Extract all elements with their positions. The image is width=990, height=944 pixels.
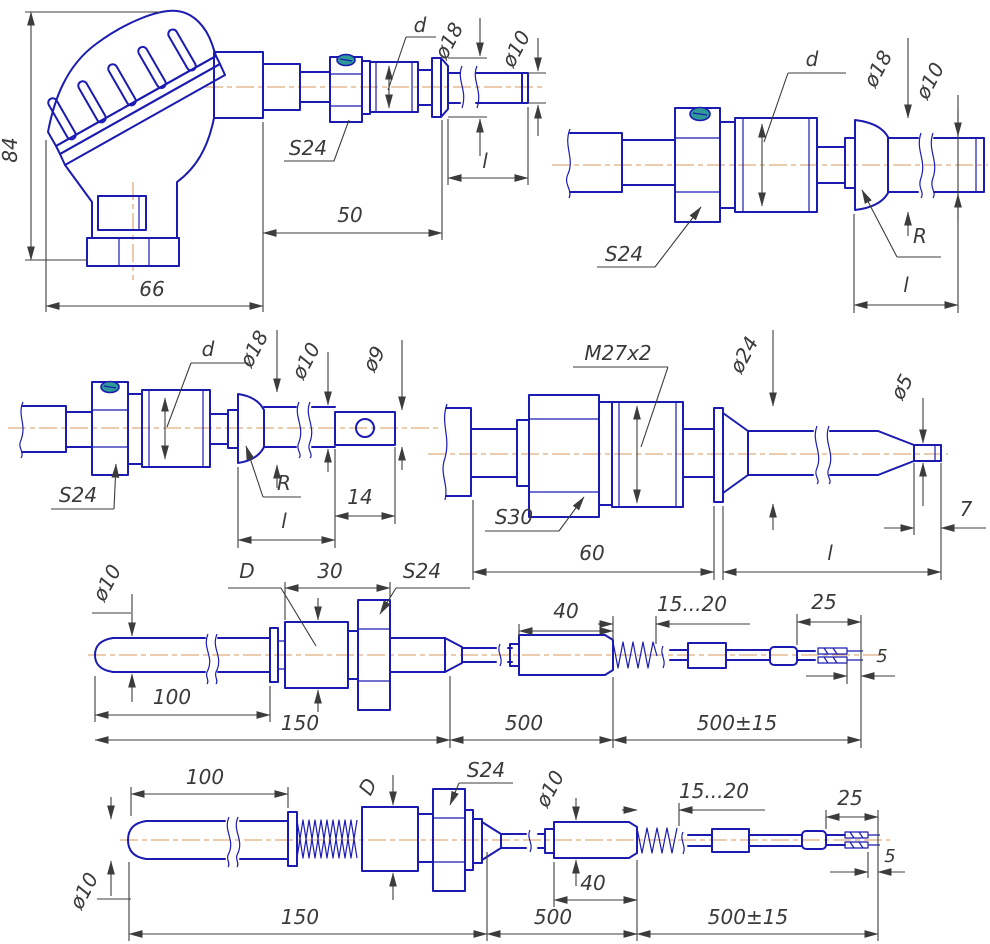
dim-mount-length: 150 xyxy=(281,905,319,929)
dim-mid-length: 500 xyxy=(505,711,543,735)
dim-hex-size: S24 xyxy=(467,758,505,782)
dim-mount-length: 150 xyxy=(281,711,319,735)
fitting-chain xyxy=(263,55,528,123)
dim-thread: d xyxy=(202,337,215,361)
dim-hex-size: S24 xyxy=(289,136,327,160)
dim-thread: M27x2 xyxy=(584,341,651,365)
dim-body-length: 60 xyxy=(579,541,604,565)
dim-hex-size: S24 xyxy=(403,559,441,583)
dim-lug-length: 14 xyxy=(347,485,372,509)
dim-immersion-length: l xyxy=(281,509,287,533)
cover-ribs xyxy=(47,28,198,141)
dim-body-length: 30 xyxy=(317,559,342,583)
view-cable-probe-spring: 100 D S24 ø10 ø10 40 15...20 25 xyxy=(64,758,905,941)
view-cable-probe-smooth: ø10 100 D 30 S24 40 15...20 25 xyxy=(87,559,895,748)
view-fitting-lug: d ø18 ø10 ø9 S24 R l 14 xyxy=(8,326,438,548)
technical-drawing-sheet: 84 66 50 l S24 d ø18 ø10 xyxy=(0,0,990,944)
head-body xyxy=(65,52,263,266)
dim-mount-length: 50 xyxy=(337,203,362,227)
dim-tip-length: 7 xyxy=(960,497,973,521)
dim-probe-length: 100 xyxy=(153,685,191,709)
view-sensor-with-head: 84 66 50 l S24 d ø18 ø10 xyxy=(0,11,546,312)
dim-body-dia: D xyxy=(239,559,254,583)
head-cover xyxy=(47,11,225,165)
dim-sphere-radius: R xyxy=(913,224,927,248)
dim-head-width: 66 xyxy=(139,277,164,301)
dim-mid-length: 500 xyxy=(534,905,572,929)
dim-strip-length: 5 xyxy=(884,846,895,867)
dim-dia10: ø10 xyxy=(286,338,325,383)
dim-dia10: ø10 xyxy=(496,26,535,71)
dim-strip-length: 5 xyxy=(876,646,887,667)
dim-head-height: 84 xyxy=(0,137,22,162)
dim-dia18: ø18 xyxy=(858,46,897,91)
dim-immersion-length: l xyxy=(903,273,909,297)
dim-hex-size: S24 xyxy=(605,242,643,266)
dim-tail-length: 500±15 xyxy=(708,905,788,929)
dim-probe-dia: ø10 xyxy=(64,868,103,913)
dim-hex-size: S30 xyxy=(495,505,533,529)
dim-lead-length: 25 xyxy=(811,590,836,614)
dim-immersion-length: l xyxy=(827,541,833,565)
dim-sleeve-length: 40 xyxy=(553,599,578,623)
dim-dia24: ø24 xyxy=(724,332,763,377)
dim-tail-length: 500±15 xyxy=(697,711,777,735)
dim-body-dia: D xyxy=(354,774,382,799)
dim-thread: d xyxy=(806,47,819,71)
dim-dia18: ø18 xyxy=(234,326,273,371)
view6-dimensions: 100 D S24 ø10 ø10 40 15...20 25 xyxy=(64,758,905,941)
dim-flex-length: 15...20 xyxy=(679,779,749,803)
dim-dia10: ø10 xyxy=(910,58,949,103)
dim-sleeve-dia: ø10 xyxy=(530,766,569,811)
fitting-parts xyxy=(443,395,941,517)
view-fitting-m27: M27x2 ø24 ø5 S30 60 l 7 xyxy=(428,330,986,580)
dim-thread: d xyxy=(414,13,427,37)
dim-dia10: ø10 xyxy=(87,560,126,605)
dim-flex-length: 15...20 xyxy=(657,592,727,616)
dim-immersion-length: l xyxy=(482,149,488,173)
view2-dimensions: d ø18 ø10 S24 R l xyxy=(597,38,958,313)
dim-lead-length: 25 xyxy=(837,786,862,810)
dim-probe-length: 100 xyxy=(186,765,224,789)
view-fitting-sphere: d ø18 ø10 S24 R l xyxy=(552,38,988,313)
dim-dia9: ø9 xyxy=(357,342,390,376)
dim-sphere-radius: R xyxy=(277,471,291,495)
view3-dimensions: d ø18 ø10 ø9 S24 R l 14 xyxy=(51,326,402,548)
dim-dia5: ø5 xyxy=(885,370,918,404)
dim-sleeve-length: 40 xyxy=(580,871,605,895)
dim-hex-size: S24 xyxy=(59,483,97,507)
view4-dimensions: M27x2 ø24 ø5 S30 60 l 7 xyxy=(473,330,986,580)
